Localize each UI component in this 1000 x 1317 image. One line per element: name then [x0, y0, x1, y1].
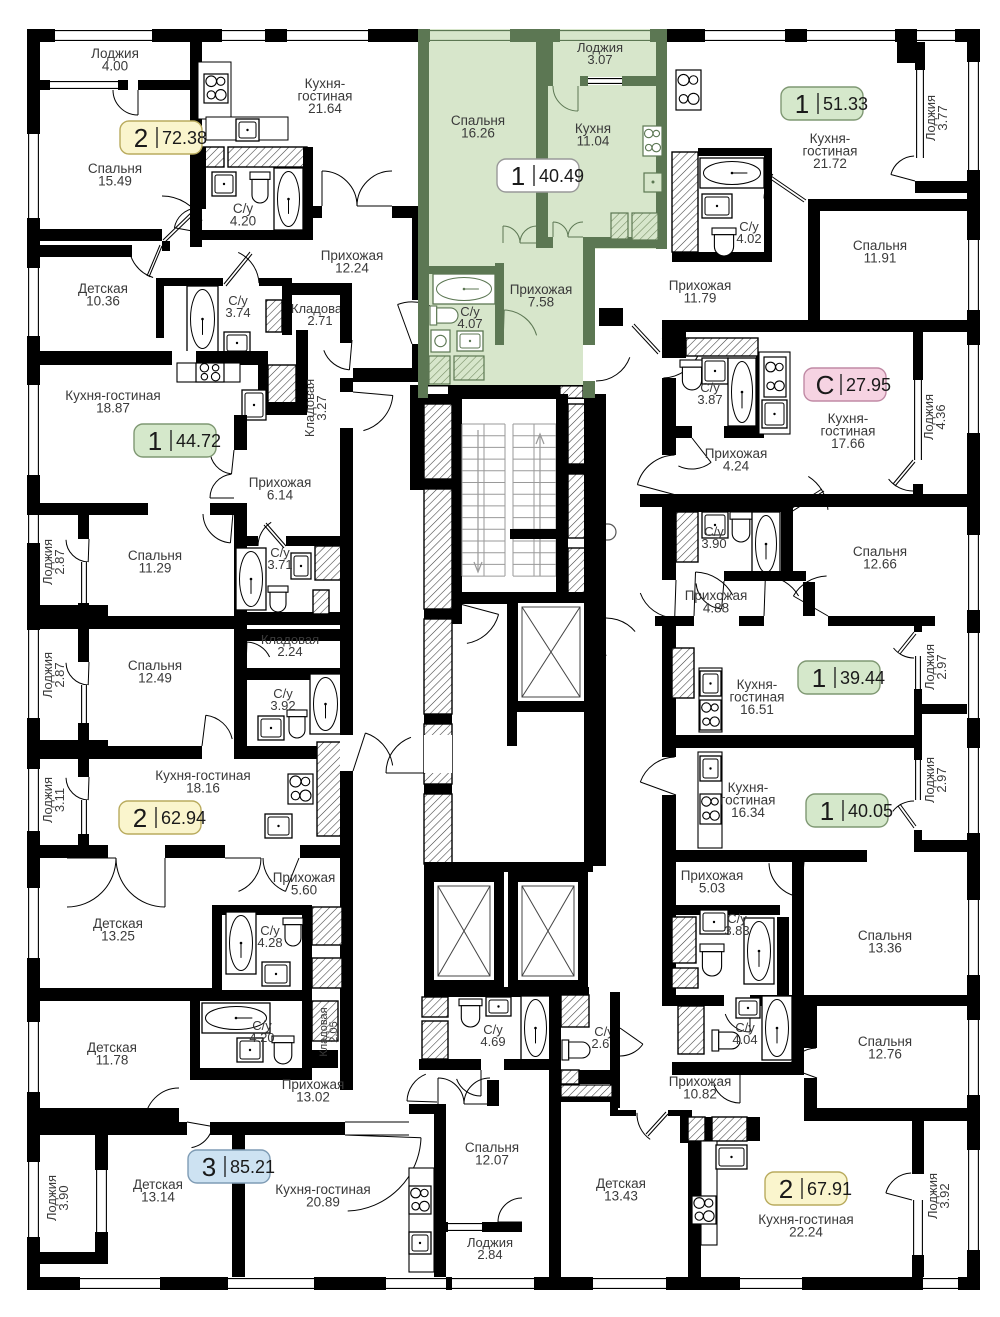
svg-text:3.27: 3.27 [314, 395, 329, 420]
svg-text:4.20: 4.20 [230, 214, 256, 229]
svg-text:4.20: 4.20 [249, 1030, 274, 1045]
svg-text:11.04: 11.04 [577, 134, 610, 149]
svg-text:12.76: 12.76 [868, 1047, 902, 1062]
svg-text:13.43: 13.43 [604, 1189, 638, 1204]
svg-text:2.84: 2.84 [477, 1247, 502, 1262]
svg-text:2: 2 [779, 1174, 793, 1204]
svg-text:85.21: 85.21 [230, 1157, 275, 1177]
svg-text:3.77: 3.77 [935, 105, 950, 130]
svg-text:72.38: 72.38 [162, 128, 207, 148]
svg-text:3.92: 3.92 [937, 1183, 952, 1208]
svg-text:1: 1 [148, 426, 162, 456]
svg-text:3.11: 3.11 [52, 788, 67, 812]
svg-text:39.44: 39.44 [840, 668, 885, 688]
svg-text:22.24: 22.24 [789, 1225, 823, 1240]
svg-text:3.71: 3.71 [267, 557, 292, 572]
svg-text:18.87: 18.87 [96, 401, 130, 416]
svg-text:С: С [816, 370, 835, 400]
svg-text:27.95: 27.95 [846, 375, 891, 395]
svg-text:3.92: 3.92 [270, 698, 295, 713]
svg-text:21.72: 21.72 [813, 156, 847, 171]
svg-text:21.64: 21.64 [308, 101, 342, 116]
svg-text:2.71: 2.71 [307, 313, 332, 328]
svg-text:3.90: 3.90 [56, 1185, 71, 1210]
svg-text:17.66: 17.66 [831, 436, 865, 451]
svg-text:2.05: 2.05 [328, 1021, 340, 1042]
svg-text:11.29: 11.29 [139, 561, 172, 576]
svg-text:3.87: 3.87 [697, 392, 722, 407]
svg-text:11.91: 11.91 [864, 251, 897, 266]
svg-text:3.90: 3.90 [701, 536, 726, 551]
svg-text:12.07: 12.07 [475, 1153, 509, 1168]
svg-text:5.60: 5.60 [291, 883, 317, 898]
svg-text:11.78: 11.78 [96, 1053, 129, 1068]
svg-text:4.28: 4.28 [257, 935, 282, 950]
svg-text:2.97: 2.97 [934, 767, 949, 792]
svg-text:16.34: 16.34 [731, 805, 765, 820]
svg-text:6.14: 6.14 [267, 488, 294, 503]
svg-text:2.97: 2.97 [934, 654, 949, 679]
svg-text:12.49: 12.49 [138, 671, 172, 686]
svg-text:2: 2 [133, 803, 147, 833]
svg-text:15.49: 15.49 [98, 174, 132, 189]
svg-text:2: 2 [134, 123, 148, 153]
svg-text:44.72: 44.72 [176, 431, 221, 451]
svg-text:3.07: 3.07 [587, 52, 612, 67]
svg-text:3.74: 3.74 [225, 305, 250, 320]
svg-text:3: 3 [202, 1152, 216, 1182]
svg-text:1: 1 [511, 161, 525, 191]
svg-text:4.02: 4.02 [736, 231, 761, 246]
svg-text:13.02: 13.02 [296, 1090, 330, 1105]
svg-text:13.36: 13.36 [868, 941, 902, 956]
svg-text:18.16: 18.16 [186, 781, 220, 796]
svg-text:10.36: 10.36 [86, 294, 120, 309]
svg-text:4.24: 4.24 [723, 459, 750, 474]
svg-text:2.87: 2.87 [52, 549, 67, 574]
svg-text:13.14: 13.14 [141, 1190, 175, 1205]
svg-text:10.82: 10.82 [683, 1087, 717, 1102]
svg-text:4.00: 4.00 [102, 59, 128, 74]
svg-text:67.91: 67.91 [807, 1179, 852, 1199]
svg-text:5.03: 5.03 [699, 881, 725, 896]
svg-text:1: 1 [820, 796, 834, 826]
svg-text:4.36: 4.36 [933, 404, 948, 429]
svg-text:62.94: 62.94 [161, 808, 206, 828]
svg-text:1: 1 [812, 663, 826, 693]
svg-text:4.69: 4.69 [480, 1034, 505, 1049]
svg-text:16.51: 16.51 [740, 702, 774, 717]
svg-text:12.24: 12.24 [335, 261, 369, 276]
svg-text:16.26: 16.26 [461, 126, 495, 141]
svg-text:20.89: 20.89 [306, 1195, 340, 1210]
svg-text:11.79: 11.79 [684, 291, 717, 306]
svg-text:51.33: 51.33 [823, 94, 868, 114]
svg-text:3.83: 3.83 [724, 923, 749, 938]
svg-text:4.04: 4.04 [732, 1032, 757, 1047]
svg-text:40.05: 40.05 [848, 801, 893, 821]
svg-text:12.66: 12.66 [863, 557, 897, 572]
svg-text:13.25: 13.25 [101, 929, 135, 944]
svg-text:4.07: 4.07 [457, 316, 482, 331]
svg-text:2.24: 2.24 [277, 644, 302, 659]
svg-text:4.88: 4.88 [703, 601, 729, 616]
svg-text:1: 1 [795, 89, 809, 119]
svg-text:7.58: 7.58 [528, 295, 554, 310]
svg-text:40.49: 40.49 [539, 166, 584, 186]
svg-text:2.87: 2.87 [52, 662, 67, 687]
